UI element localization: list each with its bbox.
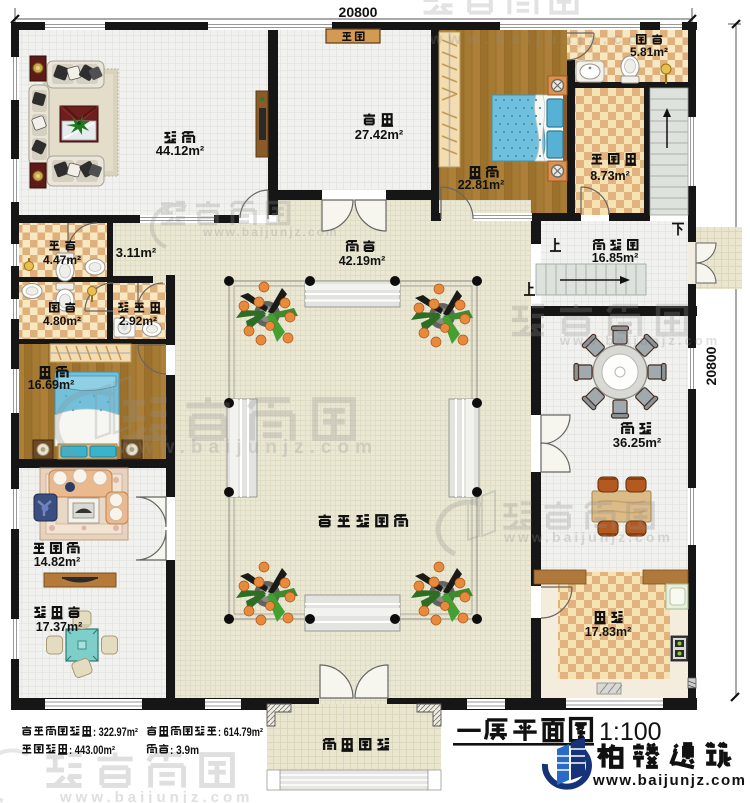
svg-text:www.baijunjz.com: www.baijunjz.com [202,225,339,239]
svg-text:www.baijunjz.com: www.baijunjz.com [559,333,720,348]
svg-text:4.47m²: 4.47m² [43,253,81,267]
svg-text:www.baijunjz.com: www.baijunjz.com [117,437,378,458]
svg-text:www.baijunjz.com: www.baijunjz.com [59,789,253,803]
svg-text:: 322.97m²: : 322.97m² [93,727,138,739]
svg-text:: 3.9m: : 3.9m [170,745,199,757]
svg-text:16.85m²: 16.85m² [592,251,639,265]
svg-text:2.92m²: 2.92m² [119,314,157,328]
svg-text:22.81m²: 22.81m² [458,178,505,192]
svg-text:5.81m²: 5.81m² [630,45,668,59]
svg-text:www.baijunjz.com: www.baijunjz.com [429,31,664,48]
svg-text:: 614.79m²: : 614.79m² [218,727,263,739]
svg-text:3.11m²: 3.11m² [116,245,157,260]
svg-text:44.12m²: 44.12m² [156,143,205,158]
svg-text:8.73m²: 8.73m² [590,169,630,183]
svg-text:36.25m²: 36.25m² [613,435,662,450]
svg-text:14.82m²: 14.82m² [34,555,81,569]
svg-text:20800: 20800 [703,346,719,385]
svg-text:17.83m²: 17.83m² [585,625,632,639]
svg-text:1:100: 1:100 [599,718,662,746]
svg-text:www.baijunjz.com: www.baijunjz.com [503,529,673,545]
svg-text:www.baijunjz.com: www.baijunjz.com [592,772,746,789]
svg-text:17.37m²: 17.37m² [36,620,83,634]
svg-text:16.69m²: 16.69m² [28,378,75,392]
svg-text:27.42m²: 27.42m² [355,127,404,142]
svg-text:20800: 20800 [339,4,378,20]
svg-text:42.19m²: 42.19m² [339,254,386,268]
svg-text:4.80m²: 4.80m² [43,314,81,328]
svg-text:: 443.00m²: : 443.00m² [69,745,115,757]
